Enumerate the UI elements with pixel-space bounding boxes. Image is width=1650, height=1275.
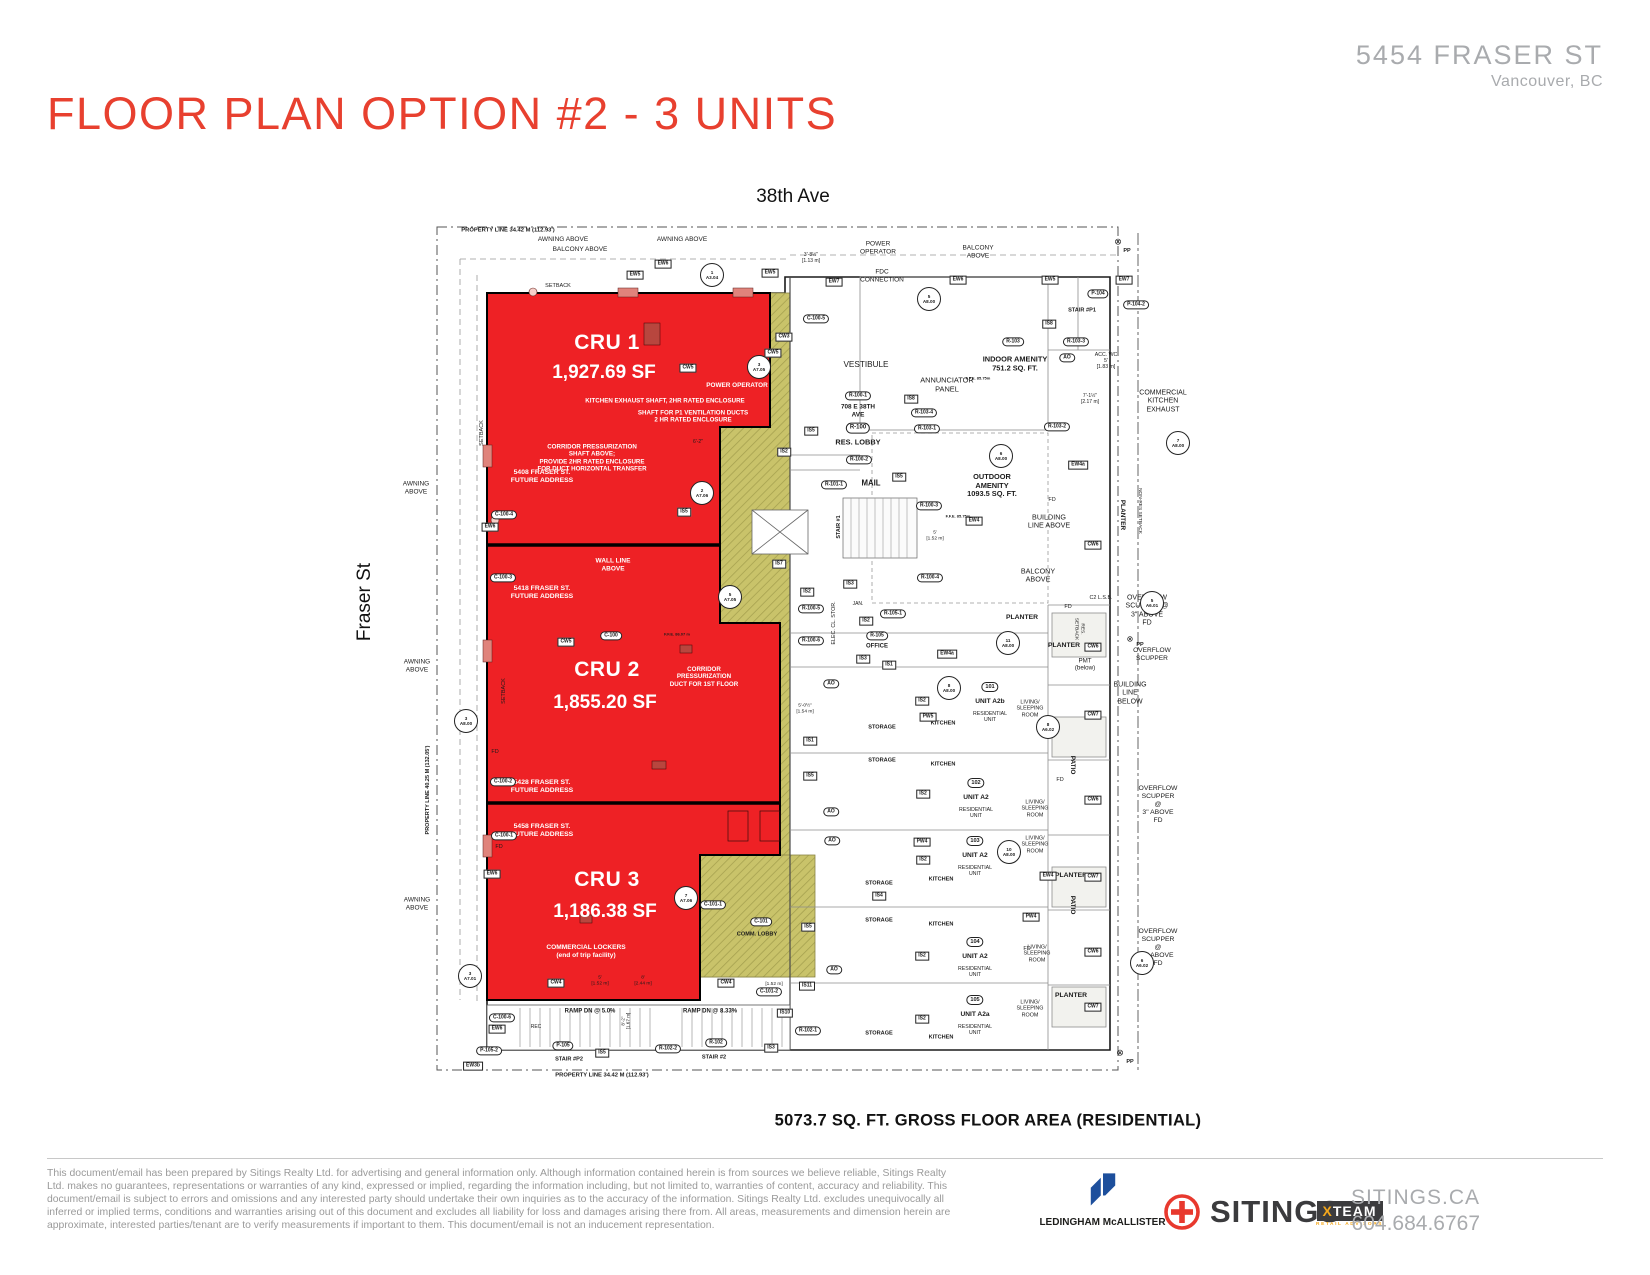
unit-number-tag: 102: [967, 778, 984, 788]
plan-annotation: STAIR #P2: [555, 1057, 583, 1064]
wall-tag: EW6: [655, 260, 672, 269]
plan-annotation: AWNING ABOVE: [657, 236, 707, 244]
wall-tag: IS5: [595, 1049, 609, 1058]
plan-annotation: COMMERCIAL KITCHEN EXHAUST: [1139, 390, 1186, 415]
wall-tag: EW5: [762, 269, 779, 278]
plan-annotation: RAMP DN @ 5.0%: [565, 1008, 616, 1015]
wall-tag: CW7: [1084, 1003, 1101, 1012]
plan-annotation: RES. SETBACK: [1073, 618, 1084, 640]
unit-living-label: LIVING/ SLEEPING ROOM: [1022, 835, 1049, 854]
plan-annotation: SHAFT FOR P1 VENTILATION DUCTS 2 HR RATE…: [638, 410, 748, 425]
room-tag: R-105-1: [880, 609, 906, 618]
plan-annotation: OFFICE: [866, 643, 888, 650]
wall-tag: PW4: [914, 838, 931, 847]
wall-tag: IS5: [804, 427, 818, 436]
wall-tag: EW4a: [937, 650, 957, 659]
plan-annotation: ⊗: [1116, 1048, 1124, 1059]
detail-marker: 10 A8.00: [997, 840, 1021, 864]
plan-annotation: 3'-8½" [1.13 m]: [802, 253, 820, 265]
wall-tag: IS1: [882, 661, 896, 670]
elevator: [752, 510, 808, 554]
plan-annotation: 8' [2.44 m]: [634, 975, 651, 986]
room-tag: R-103-2: [1044, 422, 1070, 431]
cru-area-label: 1,186.38 SF: [553, 901, 657, 923]
plan-annotation: STAIR #1: [836, 515, 842, 538]
plan-annotation: ACC. WC 5' [1.83 m]: [1095, 352, 1117, 370]
plan-annotation: PLANTER: [1048, 642, 1080, 650]
plan-annotation: REC: [531, 1025, 542, 1031]
footer-divider: [47, 1158, 1603, 1159]
room-tag: C-101: [750, 917, 772, 926]
wall-tag: IS2: [800, 588, 814, 597]
room-tag: C-100: [600, 631, 622, 640]
wall-tag: EW6: [484, 870, 501, 879]
cru-area-label: 1,855.20 SF: [553, 692, 657, 714]
room-tag: R-105: [866, 631, 888, 640]
address-line-1: 5454 FRASER ST: [1356, 40, 1603, 71]
plan-annotation: KITCHEN EXHAUST SHAFT, 2HR RATED ENCLOSU…: [585, 397, 744, 404]
wall-tag: CW3: [775, 333, 792, 342]
wall-tag: IS4: [872, 892, 886, 901]
wall-tag: IS5: [892, 473, 906, 482]
unit-living-label: LIVING/ SLEEPING ROOM: [1024, 944, 1051, 963]
room-tag: C-100-3: [490, 573, 516, 582]
plan-annotation: CORRIDOR PRESSURIZATION DUCT FOR 1ST FLO…: [670, 666, 738, 688]
plan-annotation: SETBACK: [501, 678, 507, 704]
room-tag: R-100-6: [798, 636, 824, 645]
room-tag: AO: [1059, 353, 1075, 362]
plan-annotation: AWNING ABOVE: [404, 896, 430, 911]
cru-name-label: CRU 2: [574, 658, 640, 682]
comm-lobby-zone: [700, 855, 815, 977]
wall-tag: IS2: [777, 448, 791, 457]
wall-tag: CW5: [764, 349, 781, 358]
wall-tag: EW7: [826, 278, 843, 287]
plan-annotation: 6'-2": [693, 440, 703, 446]
wall-tag: IS8: [1042, 320, 1056, 329]
room-tag: R-100: [846, 423, 870, 434]
unit-number-tag: 105: [966, 995, 983, 1005]
unit-type-label: UNIT A2: [962, 852, 987, 860]
wall-tag: IS5: [801, 923, 815, 932]
plan-annotation: COMM. LOBBY: [737, 932, 777, 939]
unit-subtitle-label: RESIDENTIAL UNIT: [959, 807, 993, 819]
unit-subtitle-label: RESIDENTIAL UNIT: [973, 711, 1007, 723]
sitings-logo-icon: [1162, 1192, 1202, 1232]
wall-tag: CW6: [1084, 948, 1101, 957]
plan-annotation: FD: [1056, 777, 1063, 783]
wall-tag: CW6: [1084, 541, 1101, 550]
wall-tag: CW7: [1084, 873, 1101, 882]
plan-annotation: PP: [1126, 1059, 1133, 1065]
wall-tag: PW4: [1023, 913, 1040, 922]
room-tag: AO: [823, 679, 839, 688]
wall-tag: IS5: [677, 508, 691, 517]
unit-type-label: UNIT A2b: [975, 698, 1004, 706]
cru-area-label: 1,927.69 SF: [552, 362, 656, 384]
sitings-logo: SITINGS: [1162, 1192, 1341, 1232]
room-tag: P-104-2: [1123, 300, 1149, 309]
plan-annotation: RAMP DN @ 8.33%: [683, 1008, 737, 1015]
wall-tag: IS2: [915, 697, 929, 706]
wall-tag: EW6: [482, 523, 499, 532]
plan-annotation: PP: [1123, 248, 1130, 254]
detail-marker: 3 A7.01: [458, 964, 482, 988]
detail-marker: 5 A6.01: [1140, 591, 1164, 615]
wall-tag: IS3: [843, 580, 857, 589]
unit-living-label: LIVING/ SLEEPING ROOM: [1017, 699, 1044, 718]
detail-marker: 6 A6.02: [1130, 951, 1154, 975]
address-line-2: Vancouver, BC: [1356, 73, 1603, 91]
plan-annotation: OVERFLOW SCUPPER @ 3" ABOVE FD: [1139, 785, 1178, 825]
wall-tag: IS11: [799, 982, 815, 991]
wall-tag: IS5: [803, 772, 817, 781]
wall-tag: CW4: [547, 979, 564, 988]
detail-marker: 2 A7.06: [690, 481, 714, 505]
plan-annotation: F.F.E. 86.07 m: [664, 633, 690, 638]
room-tag: R-102-2: [655, 1044, 681, 1053]
phone-number: 604.684.6767: [1351, 1212, 1480, 1236]
unit-type-label: UNIT A2: [962, 953, 987, 961]
unit-subtitle-label: RESIDENTIAL UNIT: [958, 865, 992, 877]
unit-number-tag: 104: [966, 937, 983, 947]
plan-annotation: ⊗: [1127, 634, 1134, 643]
plan-annotation: SETBACK: [545, 283, 571, 289]
plan-annotation: PLANTER: [1118, 500, 1126, 530]
room-tag: P-105-2: [476, 1046, 502, 1055]
plan-annotation: PATIO: [1068, 756, 1076, 775]
wall-tag: EW6: [489, 1025, 506, 1034]
room-tag: R-103-1: [914, 424, 940, 433]
detail-marker: 3 A8.00: [454, 709, 478, 733]
plan-annotation: FD: [1064, 604, 1071, 610]
plan-annotation: 5428 FRASER ST. FUTURE ADDRESS: [511, 779, 573, 795]
plan-annotation: ⊗: [1114, 237, 1122, 248]
plan-annotation: KITCHEN: [929, 877, 954, 884]
plan-annotation: OVERFLOW SCUPPER: [1133, 647, 1171, 663]
room-tag: R-100-2: [846, 455, 872, 464]
plan-annotation: STORAGE: [865, 881, 893, 888]
plan-annotation: F.F.E. 85.75m: [966, 377, 991, 382]
plan-annotation: AWNING ABOVE: [404, 658, 430, 673]
property-address: 5454 FRASER ST Vancouver, BC: [1356, 40, 1603, 91]
wall-tag: CW5: [679, 364, 696, 373]
room-tag: R-102: [705, 1038, 727, 1047]
unit-subtitle-label: RESIDENTIAL UNIT: [958, 966, 992, 978]
plan-annotation: STAIR #2: [702, 1055, 726, 1062]
room-tag: C-100-1: [491, 831, 517, 840]
plan-annotation: WALL LINE ABOVE: [596, 557, 631, 572]
detail-marker: 11 A8.00: [996, 631, 1020, 655]
room-tag: C-100-5: [803, 314, 829, 323]
detail-marker: 3 A7.05: [747, 355, 771, 379]
plan-annotation: 5418 FRASER ST. FUTURE ADDRESS: [511, 585, 573, 601]
stair-1: [843, 498, 917, 558]
room-tag: R-100-5: [798, 604, 824, 613]
plan-annotation: 5408 FRASER ST. FUTURE ADDRESS: [511, 469, 573, 485]
wall-tag: IS2: [915, 1015, 929, 1024]
room-tag: C-100-2: [490, 777, 516, 786]
room-tag: R-103-3: [1063, 337, 1089, 346]
wall-tag: IS2: [916, 790, 930, 799]
plan-annotation: RES. LOBBY: [835, 439, 880, 448]
xteam-x: X: [1323, 1203, 1333, 1219]
wall-tag: CW7: [1084, 711, 1101, 720]
plan-annotation: 5'-0½" [1.54 m]: [796, 703, 813, 714]
plan-annotation: KITCHEN: [929, 1035, 954, 1042]
gross-floor-area-note: 5073.7 SQ. FT. GROSS FLOOR AREA (RESIDEN…: [775, 1112, 1202, 1131]
ledingham-mcallister-logo: LEDINGHAM McALLISTER: [1035, 1170, 1170, 1228]
disclaimer-text: This document/email has been prepared by…: [47, 1167, 965, 1232]
room-tag: R-103-4: [911, 408, 937, 417]
plan-annotation: FD: [1048, 497, 1055, 503]
cru-name-label: CRU 3: [574, 868, 640, 892]
detail-marker: 5 A8.00: [917, 287, 941, 311]
wall-tag: IS3: [764, 1044, 778, 1053]
wall-tag: IS7: [772, 560, 786, 569]
room-tag: R-100-1: [845, 391, 871, 400]
plan-annotation: JAN.: [853, 602, 864, 608]
wall-tag: EW4: [1040, 872, 1057, 881]
plan-annotation: STORAGE: [868, 725, 896, 732]
plan-annotation: ELEC. CL. STOR.: [831, 601, 837, 644]
unit-type-label: UNIT A2: [963, 794, 988, 802]
room-tag: R-101-1: [821, 480, 847, 489]
room-tag: R-103: [1002, 337, 1024, 346]
plan-annotation: FDC CONNECTION: [860, 268, 904, 283]
plan-annotation: OUTDOOR AMENITY 1093.5 SQ. FT.: [967, 473, 1017, 499]
plan-annotation: STORAGE: [865, 1031, 893, 1038]
unit-living-label: LIVING/ SLEEPING ROOM: [1022, 799, 1049, 818]
wall-tag: IS2: [916, 856, 930, 865]
plan-annotation: PATIO: [1068, 896, 1076, 915]
plan-annotation: POWER OPERATOR: [860, 240, 896, 255]
room-tag: C-101-2: [756, 987, 782, 996]
plan-annotation: BUILDING LINE BELOW: [1113, 682, 1146, 707]
wall-tag: CW4: [717, 979, 734, 988]
plan-annotation: 5' [1.52 m]: [926, 530, 943, 541]
plan-annotation: NON-RES SETBACK: [1136, 488, 1142, 534]
plan-annotation: PLANTER: [1055, 872, 1087, 880]
plan-annotation: C2 L.S.B.: [1089, 595, 1112, 601]
room-tag: C-100-4: [491, 510, 517, 519]
wall-tag: EW7: [1116, 276, 1133, 285]
room-tag: P-105: [552, 1041, 573, 1050]
plan-annotation: BALCONY ABOVE: [1021, 568, 1055, 585]
plan-annotation: 5' [1.52 m]: [591, 975, 608, 986]
wall-tag: IS10: [777, 1009, 793, 1018]
plan-annotation: POWER OPERATOR: [706, 382, 768, 390]
detail-marker: 7 A7.06: [674, 886, 698, 910]
room-tag: AO: [826, 965, 842, 974]
detail-marker: 6 A8.00: [989, 444, 1013, 468]
plan-annotation: SETBACK: [479, 420, 485, 446]
plan-annotation: PLANTER: [1006, 614, 1038, 622]
wall-tag: IS2: [915, 952, 929, 961]
plan-annotation: 8'-2" [1.67 m]: [621, 1013, 632, 1030]
wall-tag: IS2: [859, 617, 873, 626]
plan-annotation: STORAGE: [868, 758, 896, 765]
plan-annotation: COMMERCIAL LOCKERS (end of trip facility…: [546, 944, 625, 960]
room-tag: C-101-1: [700, 900, 726, 909]
plan-annotation: BALCONY ABOVE: [962, 244, 993, 259]
plan-annotation: STORAGE: [865, 918, 893, 925]
ledingham-logo-text: LEDINGHAM McALLISTER: [1035, 1217, 1170, 1228]
room-tag: R-100-4: [917, 573, 943, 582]
room-tag: C-100-6: [489, 1013, 515, 1022]
ledingham-logo-mark: [1086, 1170, 1120, 1210]
wall-tag: CW6: [1084, 643, 1101, 652]
wall-tag: IS8: [904, 395, 918, 404]
cru-name-label: CRU 1: [574, 331, 640, 355]
plan-annotation: KITCHEN: [931, 762, 956, 769]
wall-tag: IS3: [856, 655, 870, 664]
contact-block: SITINGS.CA 604.684.6767: [1351, 1186, 1480, 1236]
plan-annotation: PLANTER: [1055, 992, 1087, 1000]
plan-annotation: AWNING ABOVE: [403, 480, 429, 495]
street-label-38th-ave: 38th Ave: [756, 186, 830, 208]
wall-tag: CW6: [1084, 796, 1101, 805]
unit-number-tag: 101: [981, 682, 998, 692]
wall-tag: PW5: [920, 713, 937, 722]
floor-plan: PROPERTY LINE 34.42 M (112.93')AWNING AB…: [430, 215, 1190, 1085]
plan-annotation: VESTIBULE: [843, 360, 888, 370]
plan-annotation: 5458 FRASER ST. FUTURE ADDRESS: [511, 823, 573, 839]
plan-annotation: MAIL: [861, 478, 880, 487]
room-tag: AO: [823, 807, 839, 816]
plan-annotation: PROPERTY LINE 34.42 M (112.93'): [555, 1073, 648, 1080]
plan-annotation: BUILDING LINE ABOVE: [1028, 514, 1070, 531]
plan-annotation: PMT (below): [1075, 658, 1095, 673]
plan-annotation: STAIR #P1: [1068, 308, 1096, 315]
plan-annotation: FD: [491, 749, 498, 755]
room-tag: R-100-3: [916, 501, 942, 510]
website: SITINGS.CA: [1351, 1186, 1480, 1210]
wall-tag: EW5: [1042, 276, 1059, 285]
plan-annotation: BALCONY ABOVE: [553, 246, 608, 254]
wall-tag: CW5: [557, 638, 574, 647]
wall-tag: EW4: [966, 517, 983, 526]
detail-marker: 1 A3.04: [700, 263, 724, 287]
room-tag: R-102-1: [795, 1026, 821, 1035]
detail-marker: 7 A8.00: [1166, 431, 1190, 455]
page-title: FLOOR PLAN OPTION #2 - 3 UNITS: [47, 88, 837, 140]
detail-marker: 8 A8.00: [937, 676, 961, 700]
plan-annotation: PROPERTY LINE 40.25 M (132.05'): [425, 746, 431, 835]
plan-annotation: KITCHEN: [931, 721, 956, 728]
plan-annotation: 708 E 38TH AVE: [841, 403, 875, 418]
street-label-fraser-st: Fraser St: [354, 563, 376, 641]
wall-tag: IS1: [803, 737, 817, 746]
unit-living-label: LIVING/ SLEEPING ROOM: [1017, 999, 1044, 1018]
room-tag: AO: [824, 836, 840, 845]
wall-tag: EW4a: [1068, 461, 1088, 470]
plan-annotation: PROPERTY LINE 34.42 M (112.93'): [461, 228, 554, 235]
wall-tag: EW3b: [463, 1062, 483, 1071]
plan-annotation: AWNING ABOVE: [538, 236, 588, 244]
unit-type-label: UNIT A2a: [960, 1011, 989, 1019]
plan-annotation: FD: [495, 844, 502, 850]
detail-marker: 8 A6.02: [1036, 715, 1060, 739]
wall-tag: EW5: [627, 271, 644, 280]
room-tag: P-104: [1087, 289, 1108, 298]
unit-subtitle-label: RESIDENTIAL UNIT: [958, 1024, 992, 1036]
plan-annotation: INDOOR AMENITY 751.2 SQ. FT.: [983, 355, 1048, 372]
wall-tag: EW6: [950, 276, 967, 285]
plan-annotation: KITCHEN: [929, 922, 954, 929]
plan-annotation: 7'-1½" [2.17 m]: [1081, 394, 1099, 406]
unit-number-tag: 103: [966, 836, 983, 846]
detail-marker: 5 A7.05: [718, 585, 742, 609]
